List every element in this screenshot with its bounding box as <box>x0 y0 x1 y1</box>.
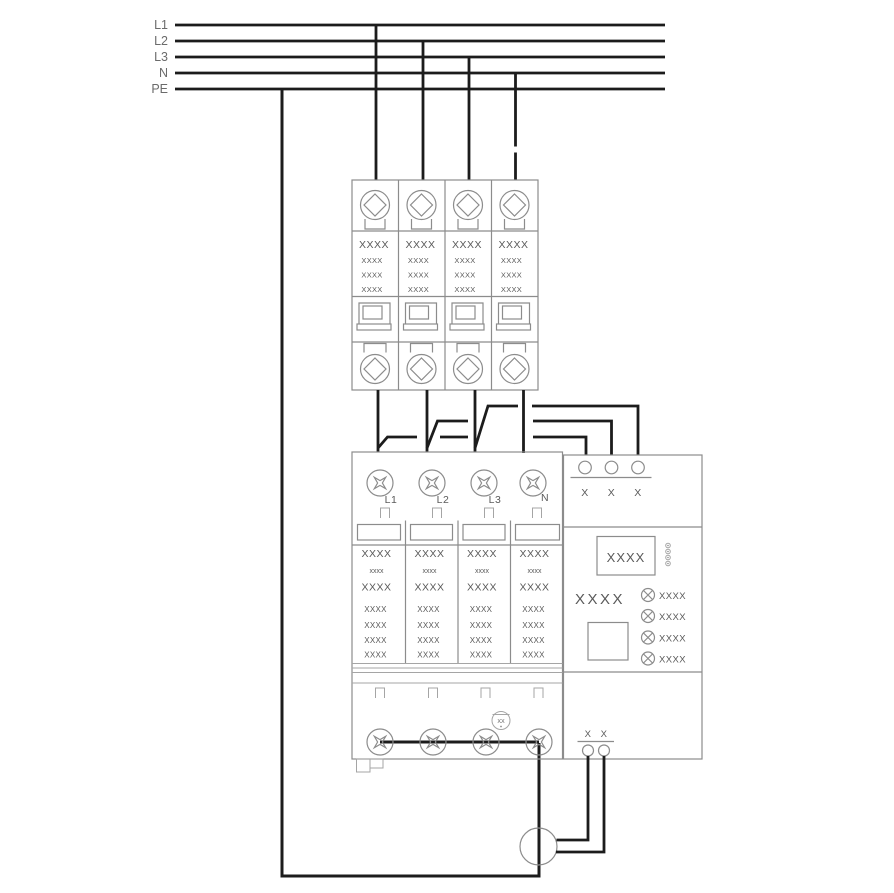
spd-m3-row4: XXXX <box>470 605 493 614</box>
indicator-lamp-icon <box>642 652 655 665</box>
terminal-clamp-icon <box>458 219 478 229</box>
spd-m1-row3: XXXX <box>361 582 391 594</box>
monitor-bottom-terminals: X X <box>578 729 615 756</box>
module-tab-icon <box>481 688 490 698</box>
spd-m3-row2: xxxx <box>475 568 490 575</box>
terminal-screw-icon <box>361 355 390 384</box>
monitor-model-text: XXXX <box>575 591 625 608</box>
bus-label-pe: PE <box>151 82 168 96</box>
breaker-pole-2-row-1: XXXX <box>405 239 435 251</box>
signal-wire-1 <box>557 756 589 840</box>
spd-m3-row1: XXXX <box>467 548 497 560</box>
breaker-pole-2-row-4: XXXX <box>408 285 429 294</box>
spd-module-4-labels: XXXX xxxx XXXX XXXX XXXX XXXX XXXX <box>519 548 549 660</box>
lamp-label-3: XXXX <box>659 634 686 645</box>
terminal-screw-icon <box>454 191 483 220</box>
signal-terminal-icon <box>632 461 645 474</box>
test-button <box>588 623 628 661</box>
module-window <box>463 525 505 541</box>
terminal-clamp-icon <box>364 344 386 353</box>
spd-m3-row3: XXXX <box>467 582 497 594</box>
terminal-screw-icon <box>407 355 436 384</box>
spd-m1-row7: XXXX <box>364 651 387 660</box>
power-bus: L1 L2 L3 N PE <box>151 18 665 96</box>
bus-label-l1: L1 <box>154 18 168 32</box>
spd-m4-row3: XXXX <box>519 582 549 594</box>
terminal-screw-icon <box>361 191 390 220</box>
spd-m1-row2: xxxx <box>370 568 385 575</box>
spd-terminal-label-n: N <box>541 492 549 504</box>
spd-m2-row2: xxxx <box>423 568 438 575</box>
spd-m2-row7: XXXX <box>417 651 440 660</box>
spd-m2-row6: XXXX <box>417 636 440 645</box>
bottom-terminal-label-2: X <box>601 729 608 740</box>
switch-toggle-icon <box>450 303 484 330</box>
bus-label-n: N <box>159 66 168 80</box>
indicator-lamp-icon <box>642 610 655 623</box>
breaker-pole-4-row-4: XXXX <box>501 285 522 294</box>
terminal-screw-icon <box>407 191 436 220</box>
terminal-clamp-icon <box>411 344 433 353</box>
spd-m3-row5: XXXX <box>470 621 493 630</box>
spd-m4-row7: XXXX <box>522 651 545 660</box>
vent-hole-dot <box>667 545 669 547</box>
spd-module-2-labels: XXXX xxxx XXXX XXXX XXXX XXXX XXXX <box>414 548 444 660</box>
signal-terminal-icon <box>605 461 618 474</box>
breaker-pole-4-row-1: XXXX <box>498 239 528 251</box>
vent-hole-dot <box>667 557 669 559</box>
spd-m3-row6: XXXX <box>470 636 493 645</box>
bottom-terminal-label-1: X <box>585 729 592 740</box>
breaker-pole-1-row-3: XXXX <box>361 271 382 280</box>
ground-ref-dot <box>500 726 502 728</box>
module-tab-icon <box>429 688 438 698</box>
wiring-diagram: L1 L2 L3 N PE XXXX XXXX XXXX XXXX <box>0 0 894 893</box>
lamp-label-4: XXXX <box>659 655 686 666</box>
spd-module-1-labels: XXXX xxxx XXXX XXXX XXXX XXXX XXXX <box>361 548 391 660</box>
spd-m4-row6: XXXX <box>522 636 545 645</box>
terminal-screw-icon <box>500 191 529 220</box>
bus-label-l2: L2 <box>154 34 168 48</box>
circuit-breaker: XXXX XXXX XXXX XXXX XXXX XXXX XXXX XXXX … <box>352 180 538 390</box>
breaker-pole-3-row-1: XXXX <box>452 239 482 251</box>
spd-terminal-label-l1: L1 <box>385 494 398 506</box>
signal-terminal-label-1: X <box>581 487 589 499</box>
vent-hole-dot <box>667 551 669 553</box>
phillips-screw-icon <box>471 470 497 496</box>
indicator-lamp-icon <box>642 589 655 602</box>
spd-m2-row3: XXXX <box>414 582 444 594</box>
spd-m4-row2: xxxx <box>528 568 543 575</box>
spd-m4-row1: XXXX <box>519 548 549 560</box>
breaker-pole-2: XXXX XXXX XXXX XXXX <box>404 191 438 384</box>
signal-wire-2 <box>556 756 604 852</box>
din-clip <box>370 759 383 768</box>
breaker-pole-1-row-2: XXXX <box>361 256 382 265</box>
module-tab-icon <box>485 508 494 518</box>
signal-terminal-label-3: X <box>634 487 642 499</box>
indicator-lamp-icon <box>642 631 655 644</box>
module-tab-icon <box>534 688 543 698</box>
signal-terminal-icon <box>583 745 594 756</box>
din-rail-lines <box>352 664 563 684</box>
spd-terminal-label-l2: L2 <box>437 494 450 506</box>
module-tab-icon <box>376 688 385 698</box>
lamp-label-1: XXXX <box>659 591 686 602</box>
breaker-pole-1: XXXX XXXX XXXX XXXX <box>357 191 391 384</box>
indicator-lamps: XXXX XXXX XXXX XXXX <box>642 589 687 666</box>
display-text: XXXX <box>607 550 646 565</box>
breaker-pole-3: XXXX XXXX XXXX XXXX <box>450 191 484 384</box>
diagram-canvas: L1 L2 L3 N PE XXXX XXXX XXXX XXXX <box>0 0 894 893</box>
breaker-pole-4: XXXX XXXX XXXX XXXX <box>497 191 531 384</box>
breaker-pole-4-row-2: XXXX <box>501 256 522 265</box>
module-tab-icon <box>433 508 442 518</box>
signal-terminal-icon <box>599 745 610 756</box>
terminal-clamp-icon <box>365 219 385 229</box>
phillips-screw-icon <box>367 470 393 496</box>
ground-ref-label: XX <box>497 719 505 725</box>
bus-tap-wires <box>376 25 516 180</box>
terminal-clamp-icon <box>504 344 526 353</box>
spd-m2-row5: XXXX <box>417 621 440 630</box>
module-window <box>516 525 560 541</box>
switch-toggle-icon <box>357 303 391 330</box>
spd-m1-row5: XXXX <box>364 621 387 630</box>
lamp-label-2: XXXX <box>659 612 686 623</box>
spd-m2-row4: XXXX <box>417 605 440 614</box>
switch-toggle-icon <box>404 303 438 330</box>
breaker-pole-2-row-2: XXXX <box>408 256 429 265</box>
module-tab-icon <box>533 508 542 518</box>
signal-terminal-label-2: X <box>608 487 616 499</box>
vent-hole-dot <box>667 563 669 565</box>
phillips-screw-icon <box>419 470 445 496</box>
spd-m3-row7: XXXX <box>470 651 493 660</box>
spd-m4-row5: XXXX <box>522 621 545 630</box>
breaker-pole-3-row-4: XXXX <box>454 285 475 294</box>
spd-m1-row4: XXXX <box>364 605 387 614</box>
breaker-to-spd-wires <box>378 390 638 455</box>
breaker-pole-2-row-3: XXXX <box>408 271 429 280</box>
din-clip <box>357 759 371 772</box>
spd-terminal-label-l3: L3 <box>489 494 502 506</box>
bus-label-l3: L3 <box>154 50 168 64</box>
spd-m2-row1: XXXX <box>414 548 444 560</box>
terminal-clamp-icon <box>412 219 432 229</box>
breaker-pole-3-row-3: XXXX <box>454 271 475 280</box>
spd-device: L1 L2 L3 N XXXX xxxx XXXX XXXX XXXX XXXX… <box>352 452 563 772</box>
spd-module-3-labels: XXXX xxxx XXXX XXXX XXXX XXXX XXXX <box>467 548 497 660</box>
terminal-clamp-icon <box>457 344 479 353</box>
module-tab-icon <box>381 508 390 518</box>
monitor-module: X X X XXXX XXXX XXXX XXXX XXXX XXXX <box>564 455 703 759</box>
breaker-pole-1-row-4: XXXX <box>361 285 382 294</box>
breaker-pole-4-row-3: XXXX <box>501 271 522 280</box>
breaker-pole-1-row-1: XXXX <box>359 239 389 251</box>
breaker-pole-3-row-2: XXXX <box>454 256 475 265</box>
terminal-screw-icon <box>500 355 529 384</box>
branch-wire-3 <box>475 406 638 455</box>
signal-terminal-icon <box>579 461 592 474</box>
ground-reference-mark: XX <box>492 712 510 730</box>
module-window <box>358 525 401 541</box>
spd-m1-row6: XXXX <box>364 636 387 645</box>
spd-m1-row1: XXXX <box>361 548 391 560</box>
switch-toggle-icon <box>497 303 531 330</box>
terminal-screw-icon <box>454 355 483 384</box>
vent-holes <box>666 543 671 566</box>
terminal-clamp-icon <box>505 219 525 229</box>
module-window <box>411 525 453 541</box>
spd-m4-row4: XXXX <box>522 605 545 614</box>
